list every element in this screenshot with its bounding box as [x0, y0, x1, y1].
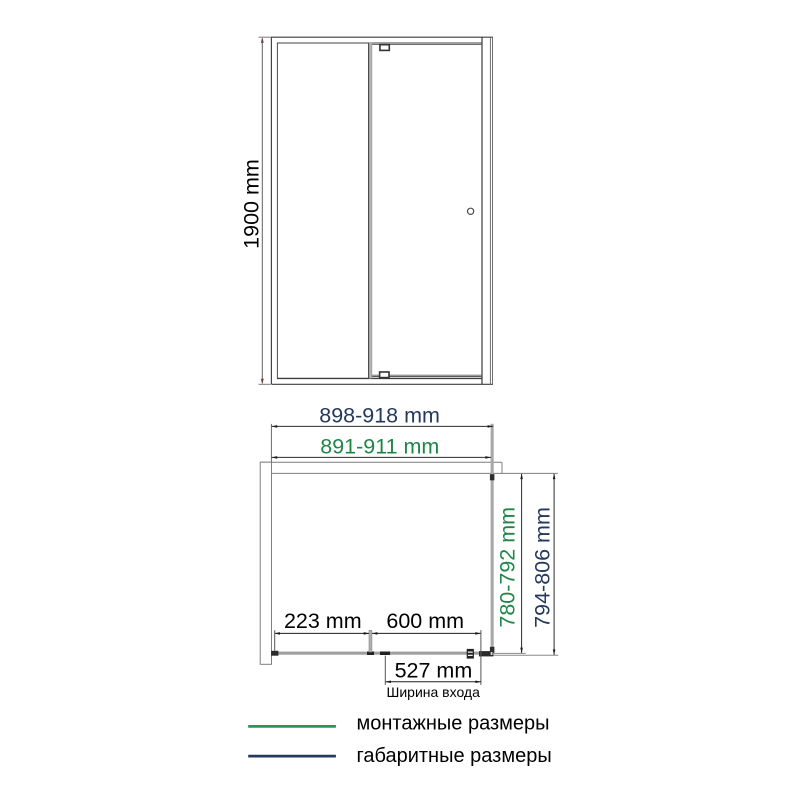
svg-text:794-806 mm: 794-806 mm — [531, 507, 555, 628]
svg-text:1900 mm: 1900 mm — [239, 159, 263, 249]
svg-text:898-918 mm: 898-918 mm — [319, 404, 440, 428]
svg-text:600 mm: 600 mm — [386, 609, 464, 633]
svg-text:габаритные размеры: габаритные размеры — [357, 745, 552, 767]
svg-text:527 mm: 527 mm — [395, 659, 473, 683]
svg-text:монтажные размеры: монтажные размеры — [357, 713, 550, 735]
svg-text:780-792 mm: 780-792 mm — [496, 507, 520, 628]
svg-text:223 mm: 223 mm — [284, 609, 362, 633]
svg-text:Ширина входа: Ширина входа — [387, 684, 481, 700]
svg-text:891-911 mm: 891-911 mm — [320, 435, 439, 459]
